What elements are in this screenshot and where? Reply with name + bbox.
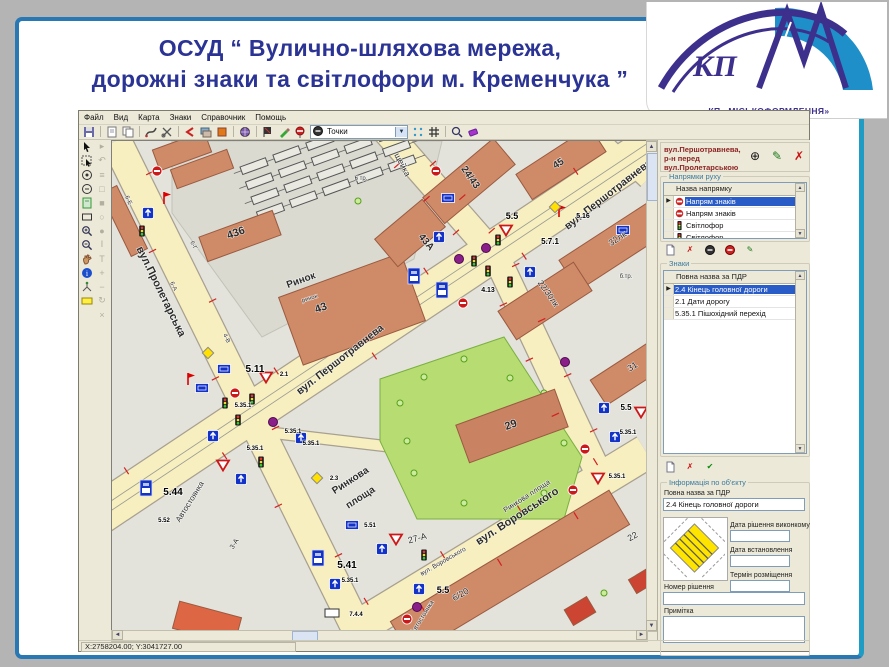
pan-tool-icon[interactable] bbox=[80, 252, 94, 265]
draw-tool-1-icon[interactable]: ↶ bbox=[95, 154, 109, 167]
scroll-up-button[interactable]: ▲ bbox=[646, 141, 657, 152]
full-name-label: Повна назва за ПДР bbox=[664, 490, 730, 497]
busstop-sign-icon[interactable] bbox=[312, 550, 324, 566]
center-tool-icon[interactable] bbox=[80, 168, 94, 181]
flag-tool-icon[interactable] bbox=[261, 125, 275, 138]
eraser-icon[interactable] bbox=[466, 125, 480, 138]
bluearrow-sign-icon[interactable] bbox=[525, 267, 536, 278]
sign-number-label: 5.5 bbox=[620, 403, 632, 412]
field-input[interactable] bbox=[730, 555, 790, 567]
toolbar-separator bbox=[139, 126, 140, 137]
decision-number-input[interactable] bbox=[663, 592, 805, 605]
sign-number-label: 5.5 bbox=[437, 585, 450, 595]
list-item[interactable]: Світлофор bbox=[664, 220, 806, 232]
map-canvas[interactable]: вул. Першотравневавул. Першотравневавул.… bbox=[111, 140, 647, 632]
cut-icon[interactable] bbox=[160, 125, 174, 138]
bluearrow-sign-icon[interactable] bbox=[236, 474, 247, 485]
chevron-down-icon[interactable]: ▼ bbox=[395, 127, 407, 137]
save-icon[interactable] bbox=[82, 125, 96, 138]
noentry-sign-icon[interactable] bbox=[458, 298, 468, 308]
copy-icon[interactable] bbox=[121, 125, 135, 138]
noentry-sign-icon[interactable] bbox=[431, 166, 441, 176]
new-record-button[interactable] bbox=[661, 458, 679, 475]
magnifier-icon[interactable] bbox=[450, 125, 464, 138]
noentry-sign-icon[interactable] bbox=[580, 444, 590, 454]
sign-number-label: 5.35.1 bbox=[620, 430, 637, 436]
row-marker bbox=[664, 220, 674, 231]
tree-icon bbox=[411, 470, 417, 476]
bluearrow-sign-icon[interactable] bbox=[414, 584, 425, 595]
menu-item-2[interactable]: Карта bbox=[133, 111, 164, 122]
edit-record-button[interactable]: ✎ bbox=[741, 241, 759, 258]
title-line-1: ОСУД “ Вулично-шляхова мережа, bbox=[30, 33, 690, 64]
directions-scrollbar[interactable]: ▲ ▼ bbox=[795, 183, 806, 238]
bluearrow-sign-icon[interactable] bbox=[377, 544, 388, 555]
bluearrow-sign-icon[interactable] bbox=[599, 403, 610, 414]
draw-tool-12-icon[interactable]: × bbox=[95, 308, 109, 321]
gis-app-window: ФайлВидКартаЗнакиСправочникПомощь Точки … bbox=[78, 110, 810, 652]
coordinates-readout: X:2758204.00; Y:3041727.00 bbox=[81, 642, 296, 652]
bluerect-sign-icon[interactable] bbox=[218, 365, 231, 374]
sign-number-label: 5.44 bbox=[163, 487, 183, 498]
draw-tool-0-icon[interactable]: ▸ bbox=[95, 140, 109, 153]
row-marker: ▶ bbox=[664, 196, 674, 207]
sign-number-label: 5.7.1 bbox=[541, 237, 559, 246]
bluearrow-sign-icon[interactable] bbox=[434, 232, 445, 243]
toolbar-separator bbox=[445, 126, 446, 137]
purple-sign-icon[interactable] bbox=[269, 418, 278, 427]
sign-number-label: 2.3 bbox=[330, 476, 339, 482]
no-entry-icon bbox=[674, 209, 685, 218]
noentry-sign-icon[interactable] bbox=[230, 388, 240, 398]
menu-item-1[interactable]: Вид bbox=[109, 111, 133, 122]
draw-tool-6-icon[interactable]: ● bbox=[95, 224, 109, 237]
draw-tool-8-icon[interactable]: Τ bbox=[95, 252, 109, 265]
sign-number-label: 7.4.4 bbox=[349, 612, 363, 618]
highlight-tool-icon[interactable] bbox=[80, 294, 94, 307]
grid-icon[interactable] bbox=[427, 125, 441, 138]
sign-number-label: 5.52 bbox=[158, 518, 170, 524]
tree-icon bbox=[421, 374, 427, 380]
draw-tool-9-icon[interactable]: + bbox=[95, 266, 109, 279]
directions-toolbar: ✗✎ bbox=[660, 241, 760, 258]
row-label: Напрям знаків bbox=[685, 197, 806, 206]
status-bar: X:2758204.00; Y:3041727.00 bbox=[79, 640, 809, 652]
draw-tool-3-icon[interactable]: □ bbox=[95, 182, 109, 195]
field-input[interactable] bbox=[730, 580, 790, 592]
apply-button[interactable]: ✔ bbox=[701, 458, 719, 475]
pan-select-tool-icon[interactable] bbox=[80, 182, 94, 195]
delete-button[interactable]: ✗ bbox=[791, 148, 807, 164]
signs-group-label: Знаки bbox=[667, 259, 691, 268]
scroll-down-button[interactable]: ▼ bbox=[795, 229, 805, 238]
list-item[interactable]: Світлофор bbox=[664, 232, 806, 239]
row-marker bbox=[664, 296, 674, 307]
purple-sign-icon[interactable] bbox=[455, 255, 464, 264]
sign-number-label: 5.5 bbox=[506, 211, 519, 221]
bluerect-sign-icon[interactable] bbox=[196, 384, 209, 393]
draw-tool-2-icon[interactable]: ≡ bbox=[95, 168, 109, 181]
topology-tool-icon[interactable] bbox=[80, 280, 94, 293]
sign-red-button[interactable] bbox=[721, 241, 739, 258]
pointer-tool-icon[interactable] bbox=[80, 140, 94, 153]
draw-tool-5-icon[interactable]: ○ bbox=[95, 210, 109, 223]
sign-number-label: 5.51 bbox=[364, 523, 376, 529]
signs-column-header: Повна назва за ПДР bbox=[664, 271, 806, 284]
menu-bar: ФайлВидКартаЗнакиСправочникПомощь bbox=[79, 111, 809, 125]
signs-scrollbar[interactable]: ▲ ▼ bbox=[795, 271, 806, 453]
sign-number-label: 5.41 bbox=[337, 560, 357, 571]
sign-number-label: 5.35.1 bbox=[303, 441, 320, 447]
scroll-right-button[interactable]: ► bbox=[636, 630, 647, 640]
tree-icon bbox=[404, 438, 410, 444]
tlight-sign-icon[interactable] bbox=[139, 226, 145, 237]
tlight-sign-icon[interactable] bbox=[421, 550, 427, 561]
list-item[interactable]: 5.35.1 Пішохідний перехід bbox=[664, 308, 806, 320]
sign-preview-image bbox=[663, 517, 728, 581]
tlight-sign-icon[interactable] bbox=[485, 266, 491, 277]
sign-icon[interactable] bbox=[293, 125, 307, 138]
toolbar-separator bbox=[178, 126, 179, 137]
busstop-sign-icon[interactable] bbox=[436, 282, 448, 298]
busstop-sign-icon[interactable] bbox=[140, 480, 152, 496]
directions-list[interactable]: Назва напрямку ▶Напрям знаківНапрям знак… bbox=[663, 182, 807, 239]
bluearrow-sign-icon[interactable] bbox=[330, 579, 341, 590]
field-label: Дата встановлення bbox=[730, 547, 792, 554]
scroll-up-button[interactable]: ▲ bbox=[795, 183, 805, 192]
sign-number-label: 5.11 bbox=[246, 364, 265, 375]
sign-number-label: 5.35.1 bbox=[609, 474, 626, 480]
directions-column-header: Назва напрямку bbox=[664, 183, 806, 196]
sign-number-label: 5.35.1 bbox=[342, 578, 359, 584]
delete-record-button[interactable]: ✗ bbox=[681, 241, 699, 258]
tree-icon bbox=[461, 356, 467, 362]
row-label: Напрям знаків bbox=[685, 209, 736, 218]
info-group-label: Інформація по об'єкту bbox=[667, 478, 748, 487]
tlight-sign-icon[interactable] bbox=[507, 277, 513, 288]
scroll-down-button[interactable]: ▼ bbox=[795, 444, 805, 453]
layer-combo[interactable]: Точки ▼ bbox=[310, 125, 408, 139]
zoom-out-tool-icon[interactable] bbox=[80, 238, 94, 251]
tlight-sign-icon[interactable] bbox=[471, 256, 477, 267]
combo-sign-icon bbox=[312, 125, 324, 139]
logo-graphic: КП bbox=[647, 2, 879, 98]
tlight-sign-icon[interactable] bbox=[495, 235, 501, 246]
toolbar-separator bbox=[256, 126, 257, 137]
sign-number-label: 5.35.1 bbox=[285, 429, 302, 435]
row-marker: ▶ bbox=[664, 284, 674, 295]
note-input[interactable] bbox=[663, 616, 805, 643]
tlight-sign-icon[interactable] bbox=[222, 398, 228, 409]
layers-icon[interactable] bbox=[199, 125, 213, 138]
slide-title: ОСУД “ Вулично-шляхова мережа, дорожні з… bbox=[30, 33, 690, 95]
tree-icon bbox=[355, 198, 361, 204]
menu-item-4[interactable]: Справочник bbox=[196, 111, 250, 122]
edit-pencil-icon[interactable] bbox=[277, 125, 291, 138]
new-record-button[interactable] bbox=[661, 241, 679, 258]
purple-sign-icon[interactable] bbox=[482, 244, 491, 253]
building-label: б.тр. bbox=[620, 274, 633, 280]
company-logo: КП КП «МІСЬКОФОРМЛЕННЯ» bbox=[646, 2, 887, 119]
tree-icon bbox=[561, 440, 567, 446]
row-label: 2.1 Дати дорогу bbox=[674, 297, 730, 306]
decision-number-label: Номер рішення bbox=[664, 584, 714, 591]
scroll-left-button[interactable]: ◄ bbox=[112, 630, 123, 640]
main-toolbar: Точки ▼ bbox=[79, 124, 809, 140]
orange-icon[interactable] bbox=[215, 125, 229, 138]
info-toolbar: ✗✔ bbox=[660, 458, 720, 475]
tree-icon bbox=[461, 500, 467, 506]
info-tool-icon[interactable]: i bbox=[80, 266, 94, 279]
toolbar-separator bbox=[233, 126, 234, 137]
list-item[interactable]: 2.1 Дати дорогу bbox=[664, 296, 806, 308]
signs-list[interactable]: Повна назва за ПДР ▶2.4 Кінець головної … bbox=[663, 270, 807, 454]
bluearrow-sign-icon[interactable] bbox=[143, 208, 154, 219]
directions-group-label: Напрямки руху bbox=[667, 172, 723, 181]
busstop-sign-icon[interactable] bbox=[408, 268, 420, 284]
selection-title: вул.Першотравнева, р-н перед вул.Пролета… bbox=[664, 145, 746, 172]
full-name-input[interactable]: 2.4 Кінець головної дороги bbox=[663, 498, 805, 511]
field-label: Термін розміщення bbox=[730, 572, 792, 579]
bluerect-sign-icon[interactable] bbox=[346, 521, 359, 530]
menu-item-0[interactable]: Файл bbox=[79, 111, 109, 122]
toolbar-separator bbox=[100, 126, 101, 137]
globe-icon[interactable] bbox=[238, 125, 252, 138]
purple-sign-icon[interactable] bbox=[561, 358, 570, 367]
bluerect-sign-icon[interactable] bbox=[442, 194, 455, 203]
draw-tool-11-icon[interactable]: ↻ bbox=[95, 294, 109, 307]
angle-icon[interactable] bbox=[183, 125, 197, 138]
noentry-sign-icon[interactable] bbox=[568, 485, 578, 495]
scroll-up-button[interactable]: ▲ bbox=[795, 271, 805, 280]
right-panel: вул.Першотравнева, р-н перед вул.Пролета… bbox=[657, 140, 810, 640]
noentry-sign-icon[interactable] bbox=[402, 614, 412, 624]
sign-dark-button[interactable] bbox=[701, 241, 719, 258]
logo-kp-text: КП bbox=[692, 50, 738, 83]
tree-icon bbox=[397, 400, 403, 406]
row-label: Світлофор bbox=[685, 221, 723, 230]
traffic-light-icon bbox=[674, 221, 685, 231]
draw-tool-10-icon[interactable]: − bbox=[95, 280, 109, 293]
sheet-icon[interactable] bbox=[105, 125, 119, 138]
whiterect-sign-icon[interactable] bbox=[325, 609, 339, 617]
no-entry-icon bbox=[674, 197, 685, 206]
menu-item-5[interactable]: Помощь bbox=[250, 111, 291, 122]
selection-header: вул.Першотравнева, р-н перед вул.Пролета… bbox=[660, 142, 810, 172]
route-icon[interactable] bbox=[144, 125, 158, 138]
menu-item-3[interactable]: Знаки bbox=[165, 111, 197, 122]
tool-palette: i▸↶≡□■○●ⅠΤ+−↻× bbox=[79, 140, 110, 640]
row-marker bbox=[664, 232, 674, 239]
delete-record-button[interactable]: ✗ bbox=[681, 458, 699, 475]
zoom-in-tool-icon[interactable] bbox=[80, 224, 94, 237]
draw-tool-4-icon[interactable]: ■ bbox=[95, 196, 109, 209]
note-label: Примітка bbox=[664, 608, 694, 615]
sign-number-label: 5.35.1 bbox=[235, 403, 252, 409]
sign-number-label: 2.1 bbox=[280, 372, 289, 378]
locate-button[interactable]: ⊕ bbox=[747, 148, 763, 164]
tree-icon bbox=[601, 590, 607, 596]
draw-tool-7-icon[interactable]: Ⅰ bbox=[95, 238, 109, 251]
new-page-tool-icon[interactable] bbox=[80, 196, 94, 209]
sign-number-label: 4.13 bbox=[481, 287, 495, 294]
sign-number-label: 5.35.1 bbox=[247, 446, 264, 452]
list-item[interactable]: Напрям знаків bbox=[664, 208, 806, 220]
title-line-2: дорожні знаки та світлофори м. Кременчук… bbox=[30, 64, 690, 95]
bluearrow-sign-icon[interactable] bbox=[208, 431, 219, 442]
row-marker bbox=[664, 308, 674, 319]
sign-number-label: 5.16 bbox=[576, 213, 590, 220]
building-label: 6 тр. bbox=[355, 176, 368, 182]
combo-value: Точки bbox=[324, 127, 395, 136]
select-tool-icon[interactable] bbox=[80, 154, 94, 167]
dots-icon[interactable] bbox=[411, 125, 425, 138]
row-marker bbox=[664, 208, 674, 219]
row-label: 5.35.1 Пішохідний перехід bbox=[674, 309, 766, 318]
field-input[interactable] bbox=[730, 530, 790, 542]
rect-tool-icon[interactable] bbox=[80, 210, 94, 223]
field-label: Дата рішення виконкому bbox=[730, 522, 810, 529]
purple-sign-icon[interactable] bbox=[413, 603, 422, 612]
list-item[interactable]: ▶2.4 Кінець головної дороги bbox=[664, 284, 806, 296]
row-label: 2.4 Кінець головної дороги bbox=[674, 285, 806, 294]
traffic-light-icon bbox=[674, 233, 685, 240]
noentry-sign-icon[interactable] bbox=[152, 166, 162, 176]
row-label: Світлофор bbox=[685, 233, 723, 239]
tree-icon bbox=[507, 375, 513, 381]
tlight-sign-icon[interactable] bbox=[258, 457, 264, 468]
tlight-sign-icon[interactable] bbox=[235, 415, 241, 426]
edit-button[interactable]: ✎ bbox=[769, 148, 785, 164]
list-item[interactable]: ▶Напрям знаків bbox=[664, 196, 806, 208]
